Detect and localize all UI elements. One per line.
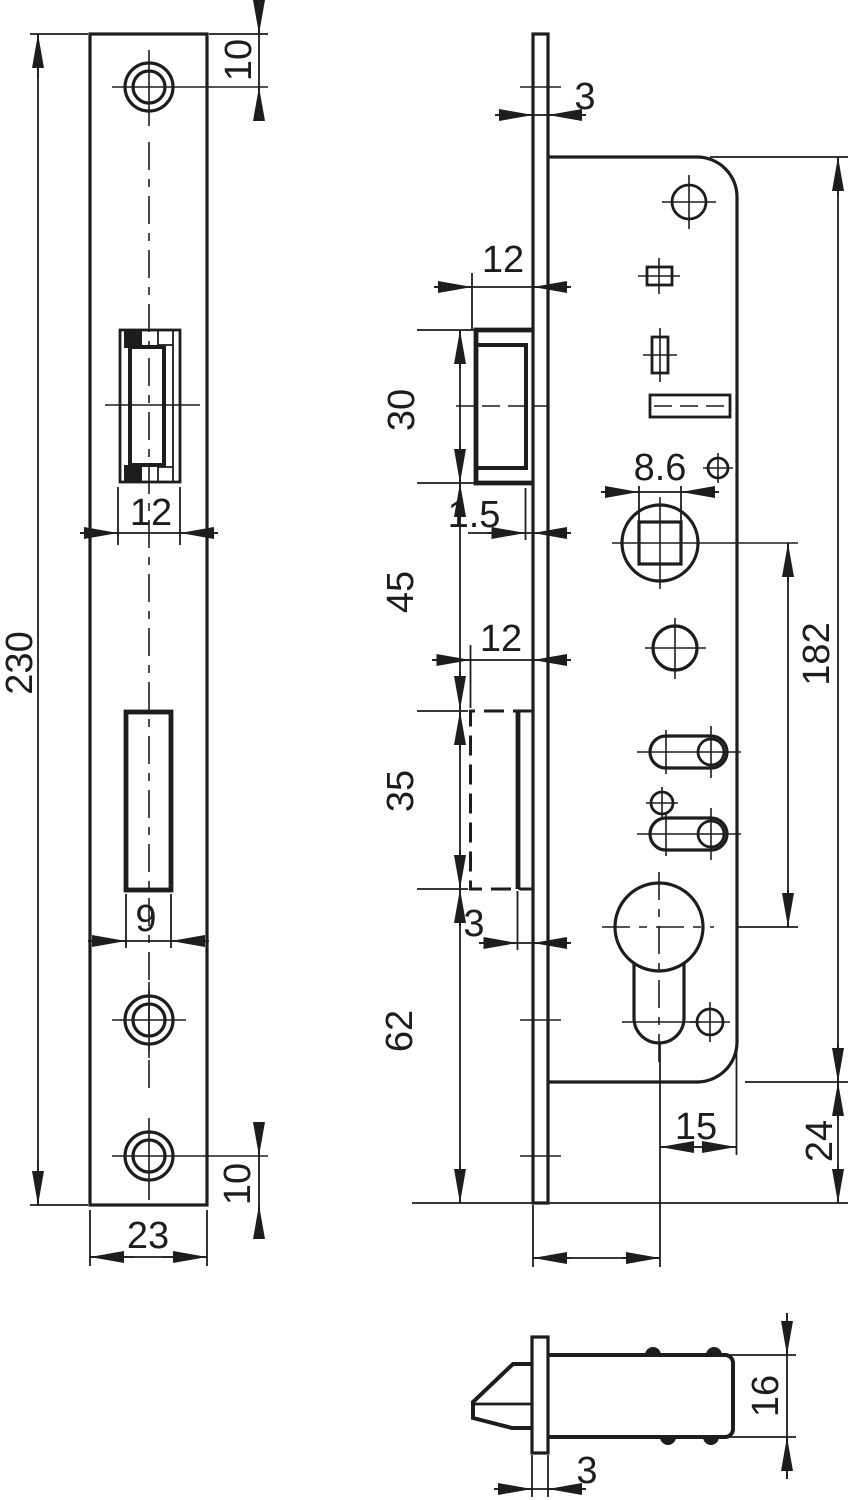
dim-label-bottom-hole-offset: 10 — [217, 1163, 259, 1205]
dim-label-deadbolt-height: 35 — [380, 770, 422, 812]
dim-label-case-height: 182 — [796, 622, 838, 685]
dim-label-case-to-plate-end: 24 — [799, 1120, 841, 1162]
pin-hole-lower-crosshair — [646, 787, 678, 819]
dimensions-faceplate: 230 10 12 9 10 23 — [0, 2, 268, 1266]
dim-label-top-hole-offset: 10 — [218, 39, 260, 81]
dim-label-faceplate-width: 23 — [127, 1215, 169, 1257]
dim-label-latch-height: 30 — [381, 389, 423, 431]
dim-label-latch-to-deadbolt: 45 — [380, 571, 422, 613]
latch-tab-top — [124, 331, 142, 348]
dim-label-deadbolt-protrusion: 3 — [463, 903, 484, 945]
dimensions-side: 3 12 30 1.5 45 12 35 3 62 8.6 182 24 15 — [379, 76, 848, 1267]
dim-label-latch-cutout-width: 12 — [130, 492, 172, 534]
latch-head-wedge — [473, 1364, 532, 1428]
dim-label-deadbolt-cutout-width: 9 — [135, 898, 156, 940]
dim-label-faceplate-height: 230 — [0, 631, 41, 694]
latch-bolt-face — [130, 347, 164, 465]
dim-label-latch-lip: 1.5 — [448, 494, 501, 536]
dim-label-faceplate-thickness: 3 — [574, 76, 595, 118]
dim-label-plate-thickness-detail: 3 — [576, 1450, 597, 1492]
drawing-page: 230 10 12 9 10 23 — [0, 0, 850, 1500]
faceplate-edge — [533, 34, 548, 1203]
deadbolt-side — [471, 711, 534, 889]
latch-tab-bottom — [124, 465, 142, 482]
latch-detail-view: 16 3 — [473, 1313, 796, 1497]
case-rivet-bumps — [645, 1347, 722, 1445]
latch-case-outline — [548, 1355, 733, 1437]
faceplate-edge-detail — [532, 1337, 548, 1453]
deadbolt-thrown-dashed — [471, 711, 534, 889]
dim-label-follower-square: 8.6 — [634, 447, 687, 489]
pin-hole-upper-crosshair — [703, 453, 733, 483]
lock-side-view: 3 12 30 1.5 45 12 35 3 62 8.6 182 24 15 — [379, 34, 848, 1267]
dimension-and-extension-lines — [412, 115, 848, 1267]
faceplate-edge-ticks — [520, 87, 561, 1156]
euro-cylinder-hole — [602, 872, 730, 1064]
oval-slot-crosshair — [637, 808, 741, 860]
dim-label-latch-protrusion: 12 — [482, 239, 524, 281]
small-slot-crosshair — [643, 328, 677, 382]
oval-slot-lower — [637, 808, 741, 860]
dim-label-cylinder-to-edge: 15 — [675, 1106, 717, 1148]
oval-slot-crosshair — [637, 726, 741, 778]
cylinder-centerlines — [602, 872, 714, 1064]
cylinder-fixing-hole-crosshair — [690, 1002, 730, 1042]
faceplate-front-view: 230 10 12 9 10 23 — [0, 2, 268, 1266]
lock-technical-drawing: 230 10 12 9 10 23 — [0, 0, 850, 1500]
dimensions-detail: 16 3 — [494, 1313, 796, 1497]
case-hole-top-crosshair — [662, 175, 716, 229]
handle-screw-hole-crosshair — [638, 258, 680, 294]
dim-label-latch-case-depth: 16 — [745, 1375, 787, 1417]
oval-slot-upper — [637, 726, 741, 778]
crosshair-lines — [105, 50, 268, 1200]
dim-label-deadbolt-to-bottom: 62 — [379, 1010, 421, 1052]
lock-case-outline — [548, 157, 737, 1082]
dim-label-deadbolt-throw: 12 — [480, 618, 522, 660]
latch-cutout — [120, 330, 180, 482]
case-hole-middle-crosshair — [645, 618, 706, 679]
